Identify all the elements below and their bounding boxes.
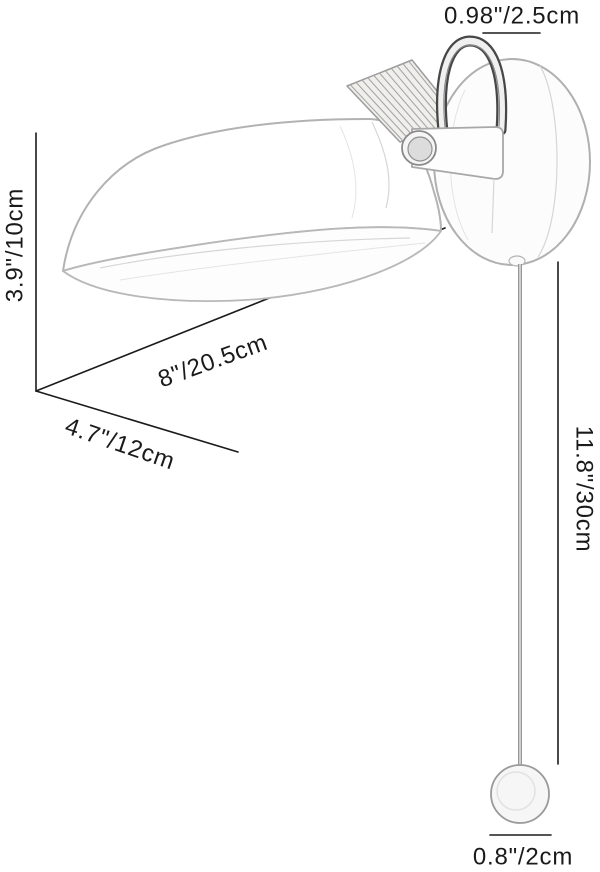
label-knob-diameter: 0.8"/2cm [473, 844, 573, 871]
label-shade-length: 8"/20.5cm [155, 329, 272, 394]
label-shade-width: 4.7"/12cm [61, 413, 178, 476]
cord-attachment-nub [509, 256, 525, 266]
wall-lamp-sketch [63, 41, 590, 823]
label-cord-length: 11.8"/30cm [571, 426, 598, 553]
pull-cord [519, 264, 522, 766]
product-dimension-diagram: 0.98"/2.5cm 3.9"/10cm 8"/20.5cm 4.7"/12c… [0, 0, 600, 872]
label-hook-width: 0.98"/2.5cm [444, 3, 580, 30]
label-shade-height: 3.9"/10cm [2, 188, 29, 302]
pivot-knob [402, 131, 436, 165]
pull-knob [491, 765, 549, 823]
